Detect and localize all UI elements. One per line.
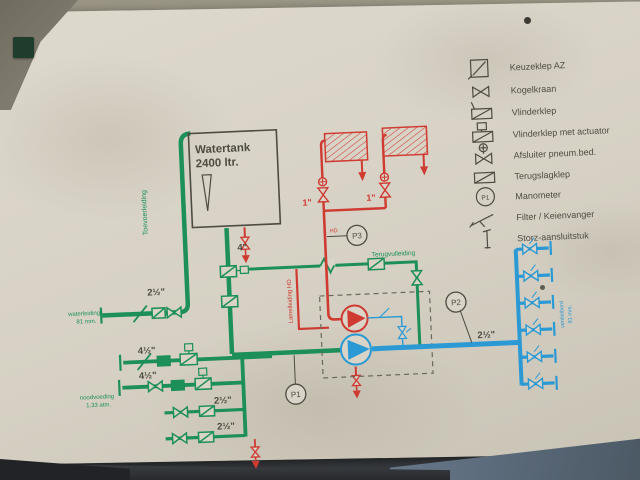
afsluiter-pneum-icon	[475, 143, 492, 164]
svg-text:Terugslagklep: Terugslagklep	[514, 169, 570, 181]
filter-icon	[469, 214, 494, 227]
svg-text:P1: P1	[481, 195, 490, 202]
pump-skid-box	[320, 291, 433, 378]
svg-text:P1: P1	[291, 390, 302, 399]
legend-row-keuzeklep: Keuzeklep AZ	[467, 56, 566, 79]
storz-inlet-icon	[101, 308, 102, 324]
flow-arrow-icon	[252, 461, 260, 469]
switch-icon	[379, 308, 389, 317]
vlinderklep-actuator-icon	[195, 368, 212, 390]
kogelkraan-icon	[473, 86, 489, 97]
kogelkraan-icon	[525, 297, 539, 308]
flow-arrow-icon	[353, 390, 361, 398]
vlinderklep-actuator-icon	[180, 343, 198, 365]
svg-text:Kogelkraan: Kogelkraan	[511, 84, 557, 96]
svg-text:Watertank: Watertank	[195, 142, 251, 156]
svg-text:Terugvulleiding: Terugvulleiding	[372, 250, 416, 259]
legend-row-terugslagklep: Terugslagklep	[474, 169, 570, 183]
legend-row-vlinderklep-actuator: Vlinderklep met actuator	[472, 117, 610, 142]
svg-text:2½": 2½"	[477, 329, 495, 341]
kogelkraan-icon	[527, 351, 541, 362]
suction-line-4	[165, 430, 245, 443]
pump-bypass-line	[367, 307, 412, 347]
flow-arrow-icon	[358, 172, 366, 181]
gauge-p1: P1	[284, 355, 306, 405]
kogelkraan-icon	[528, 378, 542, 389]
afsluiter-pneum-icon	[317, 178, 328, 202]
level-gauge-icon	[202, 175, 213, 211]
vlinderklep-actuator-icon	[220, 265, 248, 277]
flow-arrow-icon	[420, 166, 428, 175]
legend: Keuzeklep AZ Kogelkraan Vlinderklep Vlin…	[462, 54, 614, 249]
photo-frame: P3 P1 P2 Watertank 2400 ltr. 2½"	[0, 0, 640, 480]
red-pump	[341, 305, 368, 332]
svg-text:P3: P3	[352, 231, 363, 240]
storz-inlet-icon	[120, 355, 121, 371]
svg-text:1.33 atm.: 1.33 atm.	[86, 402, 112, 409]
svg-text:1": 1"	[366, 193, 376, 203]
flow-arrow-icon	[242, 255, 250, 263]
svg-text:2400 ltr.: 2400 ltr.	[195, 156, 238, 170]
terugslagklep-icon	[474, 172, 494, 183]
svg-text:HD: HD	[330, 228, 338, 234]
storz-outlet-icon	[550, 241, 556, 390]
svg-text:Afsluiter pneum.bed.: Afsluiter pneum.bed.	[513, 147, 596, 161]
svg-text:Vlinderklep: Vlinderklep	[512, 106, 557, 118]
legend-row-manometer: P1 Manometer	[476, 184, 561, 206]
svg-text:81 mm.: 81 mm.	[567, 304, 574, 323]
svg-text:Lamelleiding HD: Lamelleiding HD	[287, 279, 295, 324]
svg-text:4": 4"	[237, 242, 247, 253]
svg-text:waterleiding: waterleiding	[67, 311, 100, 318]
legend-row-kogelkraan: Kogelkraan	[473, 84, 557, 98]
valve-icon	[157, 356, 170, 367]
afsluiter-pneum-icon	[379, 173, 390, 197]
svg-text:Keuzeklep AZ: Keuzeklep AZ	[510, 60, 566, 72]
svg-text:P2: P2	[451, 298, 462, 307]
svg-text:81 mm.: 81 mm.	[76, 319, 97, 326]
vlinderklep-icon	[221, 296, 237, 308]
svg-text:Vlinderklep met actuator: Vlinderklep met actuator	[512, 125, 609, 139]
piping-schematic: P3 P1 P2 Watertank 2400 ltr. 2½"	[0, 0, 640, 480]
legend-row-afsluiter: Afsluiter pneum.bed.	[475, 139, 596, 164]
valve-icon	[152, 308, 165, 319]
kogelkraan-icon	[173, 407, 187, 418]
svg-text:4½": 4½"	[138, 345, 156, 357]
vlinderklep-actuator-icon	[472, 122, 493, 142]
kogelkraan-icon	[167, 307, 181, 318]
kogelkraan-icon	[524, 271, 538, 282]
kogelkraan-icon	[523, 244, 537, 255]
kogelkraan-icon	[172, 433, 186, 444]
svg-text:2½": 2½"	[147, 287, 165, 299]
gauge-p2: P2	[446, 292, 472, 344]
svg-text:Filter / Keienvanger: Filter / Keienvanger	[516, 209, 594, 222]
heat-exchanger-right	[382, 126, 427, 156]
blue-pump	[340, 334, 371, 365]
heat-exchanger-left	[324, 132, 367, 162]
legend-row-filter: Filter / Keienvanger	[469, 209, 594, 227]
svg-text:noodvoeding: noodvoeding	[80, 394, 115, 401]
suction-line-2	[119, 366, 244, 395]
vlinderklep-icon	[471, 101, 492, 119]
kogelkraan-icon	[148, 381, 162, 392]
svg-text:2½": 2½"	[217, 421, 235, 433]
svg-text:1": 1"	[302, 197, 312, 207]
lamel-pipe	[296, 268, 329, 329]
svg-text:ventielbord: ventielbord	[559, 301, 566, 328]
vlinderklep-icon	[199, 406, 214, 417]
bypass-valve-icon	[398, 326, 407, 338]
valve-icon	[171, 380, 184, 391]
pin-hole	[524, 17, 531, 24]
legend-row-vlinderklep: Vlinderklep	[471, 99, 556, 120]
suction-line-3	[164, 404, 244, 417]
storz-inlet-icon	[119, 380, 120, 396]
svg-text:Storz-aansluitstuk: Storz-aansluitstuk	[517, 230, 589, 243]
keuzeklep-icon	[467, 60, 488, 80]
drain-valve-icon	[251, 447, 259, 457]
pipe-labels: 2½" Toevoerleiding waterleiding 81 mm. 4…	[62, 171, 578, 439]
storz-icon	[483, 230, 492, 249]
speck	[540, 285, 545, 290]
kogelkraan-icon	[412, 271, 423, 285]
water-tank: Watertank 2400 ltr.	[188, 130, 280, 228]
svg-text:4½": 4½"	[139, 370, 157, 382]
vlinderklep-icon	[198, 432, 213, 443]
manometer-icon: P1	[476, 187, 495, 206]
svg-text:Manometer: Manometer	[515, 189, 561, 201]
kogelkraan-icon	[526, 324, 540, 335]
svg-text:Toevoerleiding: Toevoerleiding	[141, 190, 150, 236]
svg-text:2½": 2½"	[214, 395, 232, 407]
terugslagklep-icon	[368, 258, 384, 270]
